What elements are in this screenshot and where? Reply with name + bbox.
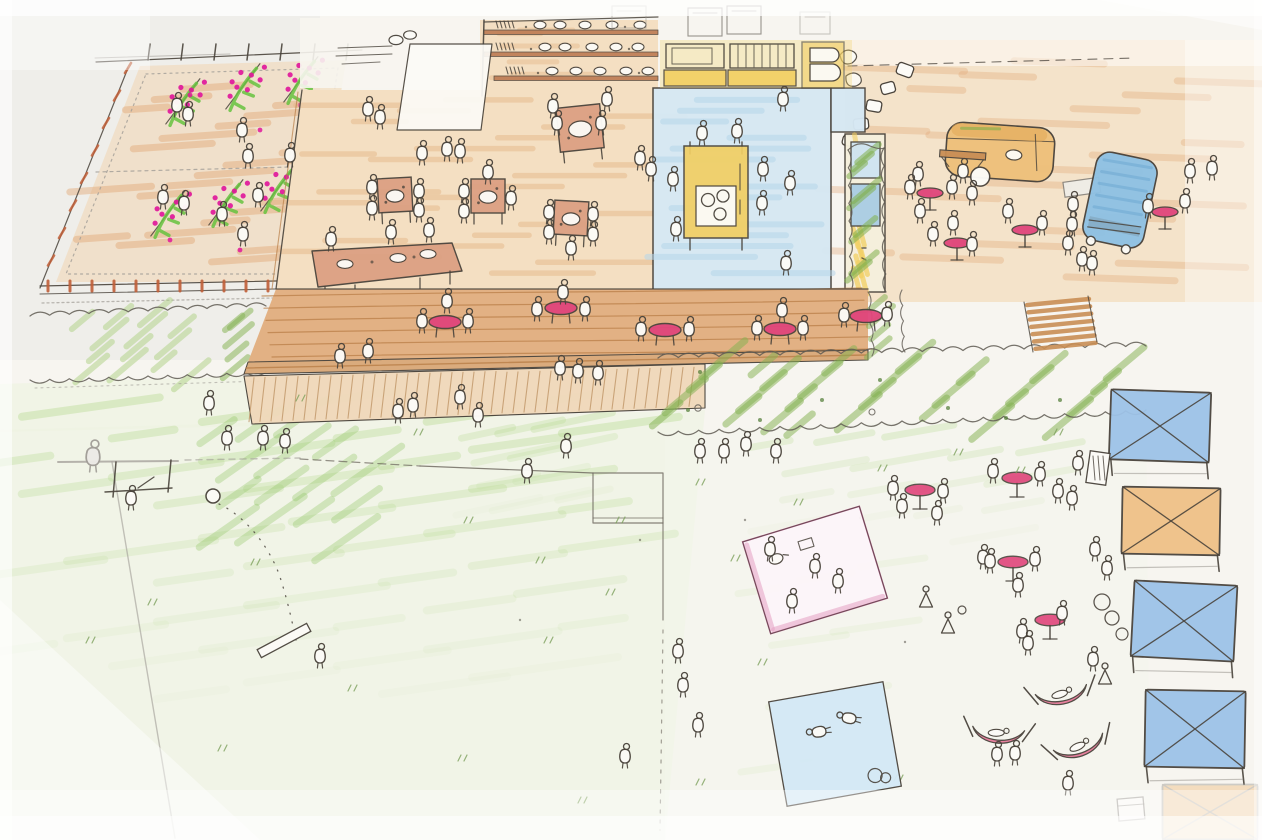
market-terrace xyxy=(272,17,685,300)
sketch-canvas: Hand-drawn aerial site-plan sketch in in… xyxy=(0,0,1262,840)
site-plan-sketch: Hand-drawn aerial site-plan sketch in in… xyxy=(0,0,1262,840)
hall-prep-table xyxy=(684,142,748,250)
picnic-blanket-blue xyxy=(769,682,902,807)
